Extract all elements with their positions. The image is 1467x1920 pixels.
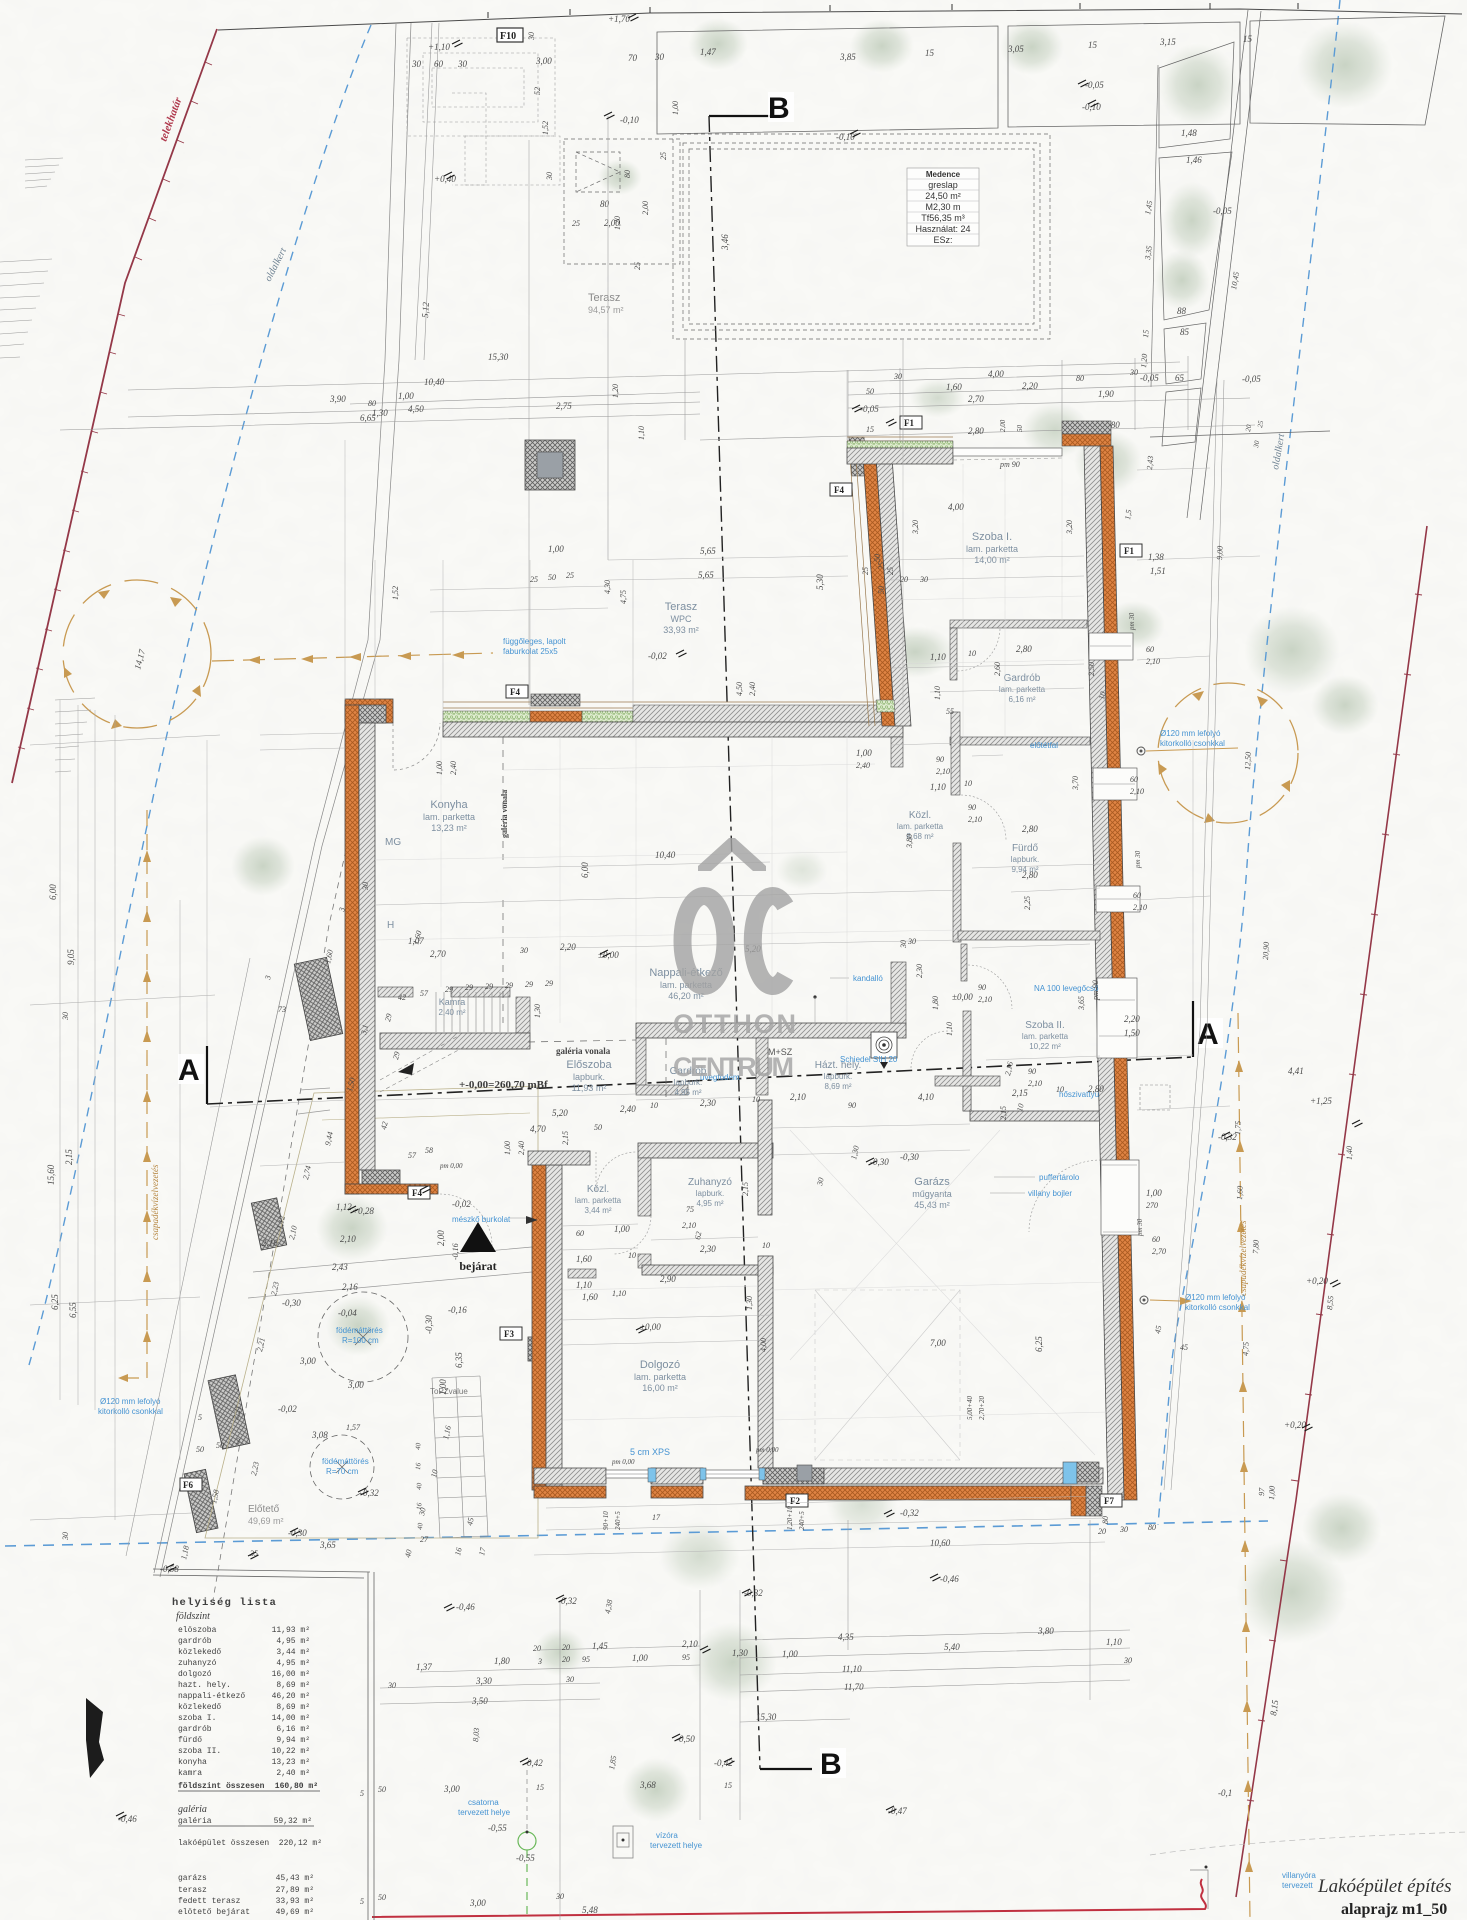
svg-text:75: 75 bbox=[686, 1205, 694, 1214]
svg-text:csapadékvízelvezetés: csapadékvízelvezetés bbox=[150, 1164, 160, 1240]
svg-text:F6: F6 bbox=[183, 1480, 193, 1490]
svg-text:50: 50 bbox=[548, 573, 556, 582]
svg-text:30: 30 bbox=[1123, 1656, 1132, 1665]
svg-text:2,00: 2,00 bbox=[641, 201, 650, 215]
svg-text:lakóépület összesen: lakóépület összesen bbox=[178, 1839, 269, 1848]
svg-text:-0,30: -0,30 bbox=[282, 1298, 301, 1308]
svg-text:11,93 m²: 11,93 m² bbox=[272, 1626, 310, 1635]
svg-text:25: 25 bbox=[566, 571, 574, 580]
svg-text:30: 30 bbox=[545, 172, 554, 181]
svg-text:5,65: 5,65 bbox=[698, 570, 714, 580]
svg-text:2,80: 2,80 bbox=[1088, 1084, 1104, 1094]
svg-text:25: 25 bbox=[572, 219, 580, 228]
svg-text:vízóra: vízóra bbox=[656, 1831, 678, 1840]
svg-text:62: 62 bbox=[693, 1231, 703, 1240]
svg-text:1,52: 1,52 bbox=[391, 586, 400, 600]
svg-text:30: 30 bbox=[654, 52, 665, 62]
svg-text:1,75: 1,75 bbox=[1233, 1121, 1243, 1135]
svg-text:50: 50 bbox=[1016, 425, 1024, 433]
svg-text:1,60: 1,60 bbox=[582, 1292, 598, 1302]
svg-text:WPC: WPC bbox=[671, 614, 692, 624]
svg-text:-0,10: -0,10 bbox=[620, 115, 639, 125]
svg-text:6,00: 6,00 bbox=[580, 862, 590, 878]
svg-text:4,35: 4,35 bbox=[838, 1632, 854, 1642]
svg-text:1,10: 1,10 bbox=[930, 782, 946, 792]
svg-text:Garázs: Garázs bbox=[914, 1176, 950, 1188]
svg-text:bejárat: bejárat bbox=[459, 1259, 496, 1273]
svg-text:1,60: 1,60 bbox=[1235, 1186, 1245, 1200]
svg-text:1,10: 1,10 bbox=[933, 686, 942, 700]
svg-text:2,15: 2,15 bbox=[561, 1131, 570, 1145]
svg-text:55: 55 bbox=[946, 707, 954, 716]
svg-text:4,00: 4,00 bbox=[988, 369, 1004, 379]
svg-text:2,10: 2,10 bbox=[978, 995, 992, 1004]
svg-text:1,45: 1,45 bbox=[592, 1641, 608, 1651]
svg-text:29: 29 bbox=[545, 979, 553, 988]
svg-text:17: 17 bbox=[652, 1513, 661, 1522]
svg-text:60: 60 bbox=[1130, 775, 1138, 784]
svg-text:3,00: 3,00 bbox=[535, 56, 552, 66]
svg-text:1,46: 1,46 bbox=[1186, 155, 1202, 165]
svg-text:29: 29 bbox=[505, 981, 513, 990]
svg-text:Előtető: Előtető bbox=[248, 1504, 280, 1515]
svg-text:80: 80 bbox=[623, 170, 632, 178]
svg-text:2,16: 2,16 bbox=[342, 1282, 358, 1292]
svg-text:puffertárolo: puffertárolo bbox=[1039, 1173, 1080, 1182]
svg-text:30: 30 bbox=[1129, 368, 1138, 377]
svg-text:3,00: 3,00 bbox=[347, 1380, 364, 1390]
svg-text:40: 40 bbox=[415, 1482, 424, 1490]
svg-text:kamra: kamra bbox=[178, 1769, 202, 1778]
svg-text:1,50: 1,50 bbox=[1124, 1028, 1140, 1038]
svg-text:5,65: 5,65 bbox=[700, 546, 716, 556]
svg-text:+1,10: +1,10 bbox=[428, 42, 450, 52]
svg-text:hazt. hely.: hazt. hely. bbox=[178, 1681, 231, 1690]
svg-text:4,10: 4,10 bbox=[918, 1092, 934, 1102]
svg-text:29: 29 bbox=[485, 982, 493, 991]
svg-text:60: 60 bbox=[1152, 1235, 1160, 1244]
svg-text:2,40: 2,40 bbox=[856, 761, 870, 770]
svg-text:29: 29 bbox=[445, 985, 453, 994]
svg-text:50: 50 bbox=[866, 387, 874, 396]
svg-text:1,90: 1,90 bbox=[1098, 389, 1114, 399]
svg-text:30: 30 bbox=[555, 1892, 564, 1901]
svg-text:9,94 m²: 9,94 m² bbox=[276, 1736, 310, 1745]
svg-text:59,32 m²: 59,32 m² bbox=[274, 1817, 312, 1826]
svg-text:1,30: 1,30 bbox=[533, 1004, 542, 1018]
svg-text:elöszoba: elöszoba bbox=[178, 1626, 217, 1635]
svg-text:270: 270 bbox=[1146, 1201, 1158, 1210]
svg-text:30: 30 bbox=[527, 32, 536, 41]
svg-text:födémáttörés: födémáttörés bbox=[322, 1457, 369, 1466]
svg-text:F10: F10 bbox=[500, 31, 516, 42]
svg-text:1,12: 1,12 bbox=[336, 1202, 352, 1212]
svg-text:25: 25 bbox=[530, 575, 538, 584]
svg-text:kandalló: kandalló bbox=[853, 974, 883, 983]
svg-text:lam. parketta: lam. parketta bbox=[575, 1196, 622, 1205]
svg-text:1,20+10: 1,20+10 bbox=[786, 1506, 794, 1530]
svg-text:függőleges, lapolt: függőleges, lapolt bbox=[503, 637, 566, 646]
svg-text:240+5: 240+5 bbox=[614, 1511, 622, 1530]
svg-text:10,22 m²: 10,22 m² bbox=[272, 1747, 310, 1756]
svg-text:Szoba I.: Szoba I. bbox=[972, 531, 1012, 543]
svg-text:lam. parketta: lam. parketta bbox=[423, 812, 475, 822]
svg-text:15,30: 15,30 bbox=[756, 1712, 777, 1722]
svg-text:8,03: 8,03 bbox=[471, 1727, 481, 1742]
svg-text:1,51: 1,51 bbox=[1150, 566, 1166, 576]
svg-text:F1: F1 bbox=[1124, 546, 1134, 556]
svg-text:szoba II.: szoba II. bbox=[178, 1747, 221, 1756]
svg-text:95: 95 bbox=[682, 1653, 690, 1662]
svg-text:-0,05: -0,05 bbox=[1085, 80, 1104, 90]
svg-text:+-0,00=260,70 mBf: +-0,00=260,70 mBf bbox=[459, 1079, 548, 1091]
svg-text:90: 90 bbox=[848, 1101, 856, 1110]
svg-text:Medence: Medence bbox=[926, 170, 961, 179]
svg-text:10,22 m²: 10,22 m² bbox=[1029, 1042, 1061, 1051]
svg-text:15: 15 bbox=[866, 425, 874, 434]
svg-text:70: 70 bbox=[628, 53, 638, 63]
svg-text:15: 15 bbox=[1088, 40, 1098, 50]
svg-text:Konyha: Konyha bbox=[430, 799, 468, 811]
svg-text:Fürdő: Fürdő bbox=[1012, 843, 1039, 854]
svg-text:10: 10 bbox=[1056, 1085, 1064, 1094]
svg-text:33,93 m²: 33,93 m² bbox=[663, 625, 699, 635]
svg-text:2,10: 2,10 bbox=[682, 1639, 698, 1649]
svg-text:villanyóra: villanyóra bbox=[1282, 1871, 1316, 1880]
svg-text:2,40: 2,40 bbox=[748, 682, 757, 696]
svg-text:1,47: 1,47 bbox=[700, 47, 716, 57]
svg-text:-0,05: -0,05 bbox=[1242, 374, 1261, 384]
svg-text:pm 0,00: pm 0,00 bbox=[611, 1458, 635, 1466]
svg-text:fürdő: fürdő bbox=[178, 1736, 202, 1745]
svg-text:3,00: 3,00 bbox=[299, 1356, 316, 1366]
svg-text:80: 80 bbox=[1148, 1523, 1156, 1532]
svg-text:90: 90 bbox=[968, 803, 976, 812]
svg-text:60: 60 bbox=[576, 1229, 584, 1238]
svg-text:+0,20: +0,20 bbox=[1284, 1420, 1306, 1430]
svg-text:2,00: 2,00 bbox=[999, 419, 1007, 432]
svg-text:15: 15 bbox=[536, 1783, 544, 1792]
svg-text:1,10: 1,10 bbox=[1106, 1637, 1122, 1647]
svg-text:6,55: 6,55 bbox=[68, 1302, 78, 1318]
svg-text:1,30: 1,30 bbox=[745, 1296, 754, 1310]
svg-text:4,95 m²: 4,95 m² bbox=[696, 1199, 723, 1208]
svg-text:+0,20: +0,20 bbox=[1306, 1276, 1328, 1286]
svg-text:tervezett helye: tervezett helye bbox=[458, 1808, 511, 1817]
svg-text:Schiedel SIH 20: Schiedel SIH 20 bbox=[840, 1055, 898, 1064]
svg-text:3,00: 3,00 bbox=[469, 1898, 486, 1908]
svg-text:80: 80 bbox=[1076, 374, 1084, 383]
svg-text:5,48: 5,48 bbox=[582, 1905, 598, 1915]
svg-text:6,00: 6,00 bbox=[48, 884, 58, 900]
svg-text:45,43 m²: 45,43 m² bbox=[276, 1874, 314, 1883]
svg-text:2,20: 2,20 bbox=[1022, 381, 1038, 391]
svg-text:2,60: 2,60 bbox=[993, 662, 1002, 676]
svg-text:60: 60 bbox=[1146, 645, 1154, 654]
svg-text:33,93 m²: 33,93 m² bbox=[276, 1897, 314, 1906]
svg-text:15: 15 bbox=[925, 48, 935, 58]
svg-text:50: 50 bbox=[378, 1893, 386, 1902]
svg-text:13,23 m²: 13,23 m² bbox=[431, 823, 467, 833]
svg-text:6,25: 6,25 bbox=[50, 1294, 60, 1310]
svg-text:2,40 m²: 2,40 m² bbox=[276, 1769, 310, 1778]
svg-text:1,30: 1,30 bbox=[372, 408, 388, 418]
svg-text:49,69 m²: 49,69 m² bbox=[276, 1908, 314, 1917]
svg-text:-0,30: -0,30 bbox=[900, 1152, 919, 1162]
svg-text:előtétfal: előtétfal bbox=[1030, 741, 1058, 750]
svg-text:4,00: 4,00 bbox=[759, 1338, 768, 1352]
svg-text:50: 50 bbox=[594, 1123, 602, 1132]
svg-text:240+5: 240+5 bbox=[798, 1511, 806, 1530]
svg-text:Terasz: Terasz bbox=[588, 292, 620, 304]
svg-text:lapburk.: lapburk. bbox=[1011, 855, 1039, 864]
svg-text:30: 30 bbox=[565, 1675, 574, 1684]
svg-text:Lakóépület építés: Lakóépület építés bbox=[1317, 1876, 1452, 1897]
svg-text:A: A bbox=[178, 1054, 200, 1087]
svg-text:1,5: 1,5 bbox=[1123, 509, 1133, 520]
svg-text:pm 30: pm 30 bbox=[1136, 1218, 1144, 1237]
svg-text:2,75: 2,75 bbox=[556, 401, 572, 411]
svg-text:galéria vonala: galéria vonala bbox=[500, 790, 509, 838]
svg-text:-0,46: -0,46 bbox=[940, 1574, 959, 1584]
svg-text:2,30: 2,30 bbox=[915, 964, 924, 978]
svg-text:10,60: 10,60 bbox=[930, 1538, 951, 1548]
svg-text:20: 20 bbox=[1098, 1527, 1106, 1536]
svg-text:80: 80 bbox=[368, 399, 376, 408]
svg-text:1,40: 1,40 bbox=[1345, 1146, 1354, 1160]
svg-text:2,80: 2,80 bbox=[968, 426, 984, 436]
svg-text:1,00: 1,00 bbox=[435, 761, 444, 775]
svg-text:4,95 m²: 4,95 m² bbox=[674, 1088, 701, 1097]
svg-text:20: 20 bbox=[900, 575, 908, 584]
svg-text:-0,02: -0,02 bbox=[648, 651, 667, 661]
svg-text:60: 60 bbox=[434, 59, 444, 69]
svg-text:4,00: 4,00 bbox=[948, 502, 964, 512]
svg-text:2,20: 2,20 bbox=[1124, 1014, 1140, 1024]
svg-text:2,10: 2,10 bbox=[968, 815, 982, 824]
svg-text:10: 10 bbox=[650, 1101, 658, 1110]
svg-text:3,44 m²: 3,44 m² bbox=[276, 1648, 310, 1657]
svg-text:3,30: 3,30 bbox=[475, 1676, 492, 1686]
svg-text:OTTHON: OTTHON bbox=[673, 1009, 796, 1039]
svg-text:7,80: 7,80 bbox=[1251, 1240, 1261, 1254]
svg-text:-0,02: -0,02 bbox=[278, 1404, 297, 1414]
svg-text:27: 27 bbox=[420, 1535, 429, 1544]
svg-text:25: 25 bbox=[633, 262, 642, 270]
svg-text:5 cm XPS: 5 cm XPS bbox=[630, 1447, 670, 1457]
svg-text:1,00: 1,00 bbox=[398, 391, 414, 401]
svg-text:1,37: 1,37 bbox=[416, 1662, 432, 1672]
svg-text:1,00: 1,00 bbox=[503, 1141, 512, 1155]
svg-text:közlekedő: közlekedő bbox=[178, 1648, 221, 1657]
svg-text:10: 10 bbox=[628, 1251, 636, 1260]
svg-text:lam. parketta: lam. parketta bbox=[897, 822, 944, 831]
svg-text:3,70: 3,70 bbox=[1071, 776, 1080, 791]
svg-text:4,95 m²: 4,95 m² bbox=[276, 1637, 310, 1646]
svg-text:3,46: 3,46 bbox=[720, 234, 730, 251]
svg-text:10: 10 bbox=[762, 1241, 770, 1250]
svg-text:4,75: 4,75 bbox=[1241, 1342, 1251, 1356]
svg-text:2,40 m²: 2,40 m² bbox=[438, 1008, 465, 1017]
svg-text:2,70: 2,70 bbox=[968, 394, 984, 404]
svg-text:4,41: 4,41 bbox=[1288, 1066, 1304, 1076]
svg-text:15,60: 15,60 bbox=[46, 1164, 56, 1185]
svg-text:kitorkolló csonkkal: kitorkolló csonkkal bbox=[98, 1407, 163, 1416]
svg-text:gardrób: gardrób bbox=[178, 1725, 212, 1734]
svg-text:2,40: 2,40 bbox=[449, 761, 458, 775]
svg-text:földszint összesen: földszint összesen bbox=[178, 1782, 265, 1791]
svg-text:1,20: 1,20 bbox=[1139, 353, 1149, 368]
svg-text:15: 15 bbox=[1141, 329, 1151, 338]
svg-text:12,50: 12,50 bbox=[1243, 752, 1253, 770]
svg-text:galéria vonala: galéria vonala bbox=[556, 1046, 611, 1056]
svg-text:Előszoba: Előszoba bbox=[566, 1059, 612, 1071]
svg-text:2,50: 2,50 bbox=[1087, 662, 1096, 676]
svg-text:90+10: 90+10 bbox=[602, 1511, 610, 1530]
svg-text:lam. parketta: lam. parketta bbox=[1022, 1032, 1069, 1041]
svg-text:csatorna: csatorna bbox=[468, 1798, 499, 1807]
svg-text:50: 50 bbox=[196, 1445, 204, 1454]
svg-text:lapburk.: lapburk. bbox=[696, 1189, 724, 1198]
svg-text:9,05: 9,05 bbox=[66, 949, 76, 965]
svg-text:5,12: 5,12 bbox=[420, 301, 431, 318]
svg-text:lam. parketta: lam. parketta bbox=[634, 1372, 686, 1382]
svg-text:közlekedő: közlekedő bbox=[178, 1703, 221, 1712]
svg-text:6,16 m²: 6,16 m² bbox=[1008, 695, 1035, 704]
svg-text:6,25: 6,25 bbox=[1034, 1336, 1044, 1352]
svg-text:5,20: 5,20 bbox=[552, 1108, 568, 1118]
svg-text:F3: F3 bbox=[504, 1329, 514, 1339]
svg-text:2,15: 2,15 bbox=[999, 1106, 1008, 1120]
svg-text:mészkő burkolat: mészkő burkolat bbox=[452, 1215, 511, 1224]
svg-text:ToPZvalue: ToPZvalue bbox=[430, 1387, 468, 1396]
svg-text:1,10: 1,10 bbox=[576, 1280, 592, 1290]
svg-text:3: 3 bbox=[537, 1657, 542, 1666]
svg-text:58: 58 bbox=[425, 1146, 433, 1155]
svg-text:+1,25: +1,25 bbox=[1310, 1096, 1332, 1106]
svg-text:2,10: 2,10 bbox=[790, 1092, 806, 1102]
svg-text:konyha: konyha bbox=[178, 1758, 207, 1767]
svg-text:villany bojler: villany bojler bbox=[1028, 1189, 1072, 1198]
svg-text:3,68: 3,68 bbox=[639, 1780, 656, 1790]
svg-text:85: 85 bbox=[1180, 327, 1190, 337]
svg-text:B: B bbox=[820, 1748, 842, 1781]
svg-text:pm 90: pm 90 bbox=[999, 460, 1020, 469]
svg-text:1,00: 1,00 bbox=[671, 101, 680, 115]
svg-text:25: 25 bbox=[877, 562, 886, 570]
svg-text:45,43 m²: 45,43 m² bbox=[914, 1200, 950, 1210]
svg-text:elötető bejárat: elötető bejárat bbox=[178, 1908, 250, 1917]
svg-text:1,00: 1,00 bbox=[438, 1379, 448, 1395]
svg-text:CENTRUM: CENTRUM bbox=[673, 1052, 794, 1082]
svg-text:2,10: 2,10 bbox=[340, 1234, 356, 1244]
svg-text:13,23 m²: 13,23 m² bbox=[272, 1758, 310, 1767]
svg-text:1,00: 1,00 bbox=[782, 1649, 798, 1659]
svg-text:30: 30 bbox=[387, 1681, 396, 1690]
svg-text:faburkolat 25x5: faburkolat 25x5 bbox=[503, 647, 558, 656]
svg-text:95: 95 bbox=[582, 1655, 590, 1664]
svg-text:49,69 m²: 49,69 m² bbox=[248, 1516, 284, 1526]
svg-text:Zuhanyzó: Zuhanyzó bbox=[688, 1177, 732, 1188]
svg-text:pm 30: pm 30 bbox=[1128, 612, 1136, 631]
svg-text:2,70: 2,70 bbox=[1152, 1247, 1166, 1256]
svg-text:3,50: 3,50 bbox=[471, 1696, 488, 1706]
svg-text:2,00: 2,00 bbox=[604, 218, 620, 228]
svg-text:Terasz: Terasz bbox=[665, 601, 697, 613]
svg-text:galéria: galéria bbox=[178, 1804, 207, 1815]
svg-text:gardrób: gardrób bbox=[178, 1637, 212, 1646]
svg-text:40: 40 bbox=[416, 1522, 425, 1530]
svg-text:1,07: 1,07 bbox=[408, 936, 424, 946]
svg-text:2,10: 2,10 bbox=[1146, 657, 1160, 666]
svg-text:-0,32: -0,32 bbox=[744, 1588, 763, 1598]
svg-text:65: 65 bbox=[1175, 373, 1185, 383]
svg-text:1,20: 1,20 bbox=[611, 384, 620, 398]
svg-text:2,00: 2,00 bbox=[436, 1230, 446, 1246]
svg-text:tervezett helye: tervezett helye bbox=[650, 1841, 703, 1850]
svg-text:2,30: 2,30 bbox=[700, 1244, 716, 1254]
svg-text:27,89 m²: 27,89 m² bbox=[276, 1886, 314, 1895]
svg-text:Ø120 mm lefolyó: Ø120 mm lefolyó bbox=[1160, 729, 1221, 738]
svg-text:Használat: 24: Használat: 24 bbox=[915, 224, 970, 234]
svg-text:7,00: 7,00 bbox=[930, 1338, 946, 1348]
svg-text:2,10: 2,10 bbox=[1133, 903, 1147, 912]
svg-text:1,00: 1,00 bbox=[548, 544, 564, 554]
svg-text:±0,00: ±0,00 bbox=[598, 950, 619, 960]
svg-text:2,30: 2,30 bbox=[700, 1098, 716, 1108]
svg-text:MG: MG bbox=[385, 837, 401, 848]
svg-text:16,00 m²: 16,00 m² bbox=[642, 1383, 678, 1393]
svg-text:46,20 m²: 46,20 m² bbox=[272, 1692, 310, 1701]
svg-text:3,44 m²: 3,44 m² bbox=[584, 1206, 611, 1215]
svg-text:30: 30 bbox=[907, 937, 916, 946]
svg-text:25: 25 bbox=[659, 152, 668, 160]
svg-text:F1: F1 bbox=[904, 418, 914, 428]
svg-text:2,10: 2,10 bbox=[1130, 787, 1144, 796]
svg-text:30: 30 bbox=[815, 1177, 826, 1188]
svg-text:1,38: 1,38 bbox=[1148, 552, 1164, 562]
svg-text:3,00: 3,00 bbox=[443, 1784, 460, 1794]
svg-text:5: 5 bbox=[198, 1413, 202, 1422]
svg-text:30: 30 bbox=[457, 59, 468, 69]
svg-text:F4: F4 bbox=[510, 687, 520, 697]
svg-text:15,30: 15,30 bbox=[488, 352, 509, 362]
svg-text:30: 30 bbox=[1119, 1525, 1128, 1534]
svg-text:3,20: 3,20 bbox=[911, 520, 920, 535]
svg-text:1,00: 1,00 bbox=[1146, 1188, 1162, 1198]
svg-text:helyiség lista: helyiség lista bbox=[172, 1597, 277, 1609]
svg-text:1,10: 1,10 bbox=[930, 652, 946, 662]
svg-text:galéria: galéria bbox=[178, 1817, 212, 1826]
svg-text:25: 25 bbox=[886, 567, 895, 575]
svg-text:14,00 m²: 14,00 m² bbox=[272, 1714, 310, 1723]
svg-text:30: 30 bbox=[411, 59, 422, 69]
svg-text:4,95 m²: 4,95 m² bbox=[276, 1659, 310, 1668]
svg-text:3,80: 3,80 bbox=[1037, 1626, 1054, 1636]
svg-text:5: 5 bbox=[360, 1897, 364, 1906]
svg-text:2,70+20: 2,70+20 bbox=[978, 1396, 986, 1420]
svg-text:2,43: 2,43 bbox=[1145, 455, 1155, 470]
svg-text:50: 50 bbox=[873, 554, 882, 562]
svg-text:29: 29 bbox=[525, 980, 533, 989]
svg-text:2,15: 2,15 bbox=[64, 1149, 74, 1165]
svg-text:F2: F2 bbox=[790, 1496, 800, 1506]
svg-text:1,52: 1,52 bbox=[541, 121, 550, 135]
svg-text:60: 60 bbox=[1133, 891, 1141, 900]
svg-text:3,65: 3,65 bbox=[319, 1540, 336, 1550]
svg-text:15: 15 bbox=[1243, 34, 1253, 44]
svg-text:-0,46: -0,46 bbox=[456, 1602, 475, 1612]
